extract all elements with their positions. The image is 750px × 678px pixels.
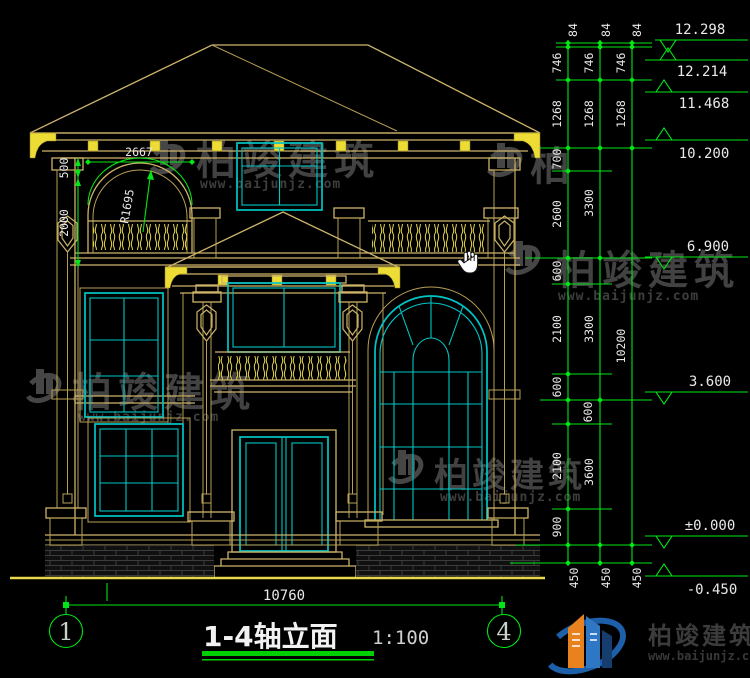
dim-text: 746 (614, 53, 628, 74)
dim-text: 2667 (125, 145, 153, 159)
base (10, 508, 545, 578)
entrance-steps (214, 552, 356, 578)
dim-text: 84 (599, 23, 613, 37)
dim-text: 600 (581, 402, 595, 423)
watermark-url: www.baijunjz.com (440, 490, 581, 505)
arch-window-sill (365, 520, 498, 527)
dim-text: 500 (57, 158, 71, 179)
elevation-text: 6.900 (687, 239, 729, 255)
dim-text: 3300 (582, 315, 596, 343)
pilaster-ornament (495, 216, 514, 252)
elevation-text: 11.468 (679, 96, 730, 112)
title-underline (202, 651, 374, 656)
dim-text: 1268 (614, 100, 628, 128)
dim-text: 1268 (550, 100, 564, 128)
dim-text: 2000 (57, 209, 71, 237)
dim-text: 2600 (550, 200, 564, 228)
title-underline-thin (202, 659, 374, 661)
elevation-text: 12.298 (675, 22, 726, 38)
roof-hip-line (212, 45, 397, 131)
logo-swoosh (540, 611, 631, 678)
dim-text: 700 (550, 149, 564, 170)
logo-building-dark (602, 630, 612, 668)
drawing-scale: 1:100 (372, 627, 429, 649)
porch-column-right (339, 285, 367, 518)
logo-building-blue (586, 616, 600, 668)
elevation-text: 12.214 (677, 64, 728, 80)
drawing-title: 1-4轴立面 (203, 620, 338, 653)
dim-text: 450 (567, 568, 581, 589)
dim-text: 84 (630, 23, 644, 37)
balustrade (93, 224, 187, 250)
dim-text: 600 (550, 377, 564, 398)
dim-text: 450 (599, 568, 613, 589)
dim-text: 450 (630, 568, 644, 589)
eave-corbel-left (30, 133, 56, 158)
logo-building-orange (568, 614, 584, 668)
dim-text: 10760 (263, 588, 305, 604)
watermark-url: www.baijunjz.com (200, 177, 341, 192)
window-first-left (88, 418, 190, 522)
brand-url: www.baijunjz.com (648, 649, 750, 663)
entrance-door (232, 430, 336, 552)
dim-text: 10200 (614, 329, 628, 364)
porch-corbel-right (378, 267, 400, 288)
dim-text: R1695 (117, 188, 137, 225)
dim-text: 900 (550, 517, 564, 538)
pan-cursor-icon (458, 251, 478, 273)
dim-text: 2100 (550, 452, 564, 480)
title-block: 1-4轴立面 1:100 (202, 620, 429, 661)
elevation-text: 10.200 (679, 146, 730, 162)
elevation-markers: 12.298 12.214 11.468 10.200 6.900 3.600 … (645, 22, 748, 598)
dim-text: 3600 (582, 458, 596, 486)
axis-number: 4 (496, 618, 511, 646)
dim-text: 2100 (550, 315, 564, 343)
elevation-text: -0.450 (687, 582, 738, 598)
dim-text: 746 (550, 53, 564, 74)
dim-text: 3300 (582, 189, 596, 217)
cad-canvas[interactable]: 柏竣建筑 www.baijunjz.com 柏 柏竣建筑 www.baijunj… (0, 0, 750, 678)
brick-base-left (45, 545, 214, 578)
axis-number: 1 (58, 618, 73, 646)
brick-base-right (356, 545, 540, 578)
watermark-url: www.baijunjz.com (558, 289, 699, 304)
elevation-text: 3.600 (689, 374, 731, 390)
brand-logo: 柏竣建筑 www.baijunjz.com (540, 611, 750, 678)
balustrade (372, 224, 486, 252)
dim-text: 600 (550, 261, 564, 282)
dim-text: 84 (566, 23, 580, 37)
dim-text: 1268 (582, 100, 596, 128)
balcony-balustrade (210, 352, 356, 392)
porch-corbel-left (165, 267, 187, 288)
elevation-text: ±0.000 (685, 518, 736, 534)
dim-text: 746 (582, 53, 596, 74)
brand-text: 柏竣建筑 (648, 622, 750, 650)
